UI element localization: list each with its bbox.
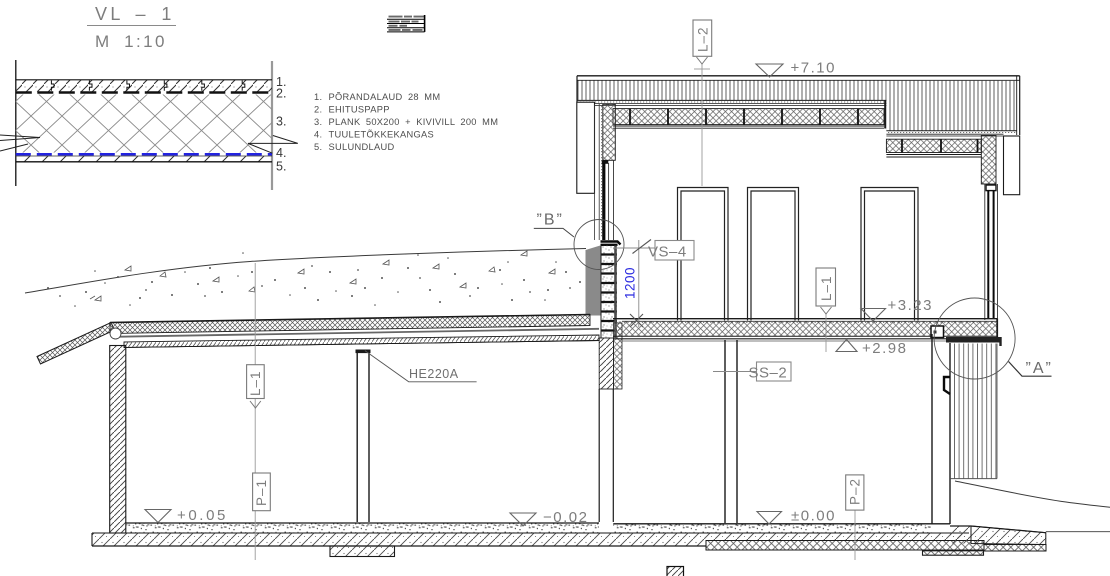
svg-text:+7.10: +7.10 bbox=[791, 60, 836, 77]
svg-text:L–2: L–2 bbox=[696, 26, 711, 52]
svg-text:4.: 4. bbox=[314, 129, 322, 139]
svg-text:TUULETÕKKEKANGAS: TUULETÕKKEKANGAS bbox=[329, 129, 435, 139]
svg-text:±0.00: ±0.00 bbox=[791, 508, 836, 525]
svg-text:3.: 3. bbox=[314, 117, 322, 127]
svg-text:PLANK 50X200 + KIVIVILL 200 MM: PLANK 50X200 + KIVIVILL 200 MM bbox=[329, 117, 499, 127]
svg-text:+0.05: +0.05 bbox=[177, 507, 228, 524]
svg-text:P–1: P–1 bbox=[254, 479, 269, 506]
svg-text:2.: 2. bbox=[314, 104, 322, 114]
svg-text:EHITUSPAPP: EHITUSPAPP bbox=[329, 104, 390, 114]
svg-text:SULUNDLAUD: SULUNDLAUD bbox=[329, 142, 395, 152]
svg-text:3.: 3. bbox=[276, 115, 286, 129]
svg-text:+2.98: +2.98 bbox=[862, 340, 907, 357]
svg-text:−0.02: −0.02 bbox=[543, 509, 588, 526]
svg-text:VS–4: VS–4 bbox=[648, 244, 687, 261]
svg-text:2.: 2. bbox=[276, 87, 286, 101]
svg-text:VL – 1: VL – 1 bbox=[95, 4, 175, 24]
svg-text:+3.23: +3.23 bbox=[888, 297, 933, 314]
svg-text:1200: 1200 bbox=[623, 267, 638, 299]
svg-text:M 1:10: M 1:10 bbox=[95, 32, 167, 51]
svg-text:5.: 5. bbox=[314, 142, 322, 152]
svg-text:4.: 4. bbox=[276, 146, 286, 160]
svg-text:P–2: P–2 bbox=[848, 478, 863, 505]
svg-text:”A”: ”A” bbox=[1026, 360, 1053, 377]
svg-text:”B”: ”B” bbox=[537, 212, 564, 229]
svg-text:5.: 5. bbox=[276, 160, 286, 174]
svg-text:1.: 1. bbox=[314, 92, 322, 102]
svg-text:L–1: L–1 bbox=[248, 370, 263, 396]
svg-text:PÕRANDALAUD 28 MM: PÕRANDALAUD 28 MM bbox=[329, 92, 441, 102]
svg-text:HE220A: HE220A bbox=[409, 367, 459, 381]
svg-text:SS–2: SS–2 bbox=[749, 365, 788, 382]
svg-text:L–1: L–1 bbox=[819, 275, 834, 301]
